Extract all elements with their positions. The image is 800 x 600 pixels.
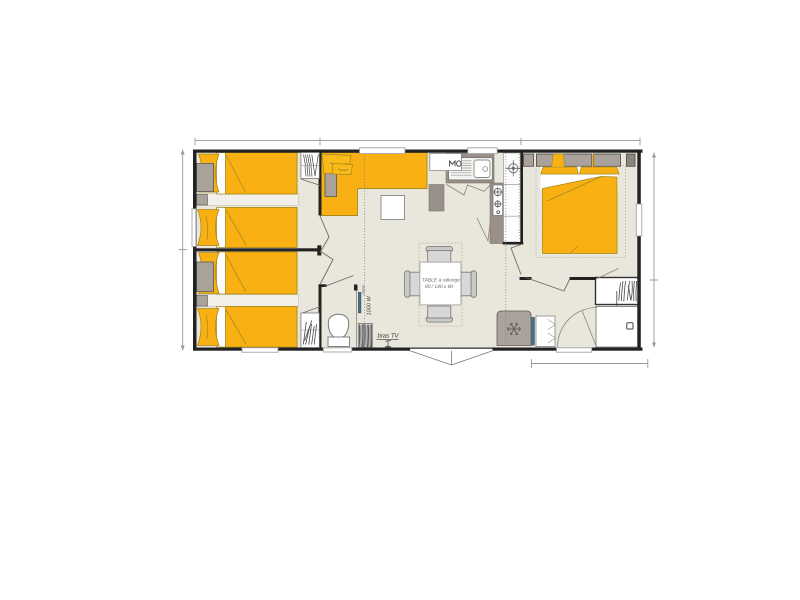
svg-text:bras TV: bras TV <box>378 333 400 340</box>
svg-text:1000 W: 1000 W <box>367 296 373 316</box>
svg-text:TABLE à rallonge: TABLE à rallonge <box>422 278 460 284</box>
svg-text:80 / 140 x 80: 80 / 140 x 80 <box>425 284 454 290</box>
